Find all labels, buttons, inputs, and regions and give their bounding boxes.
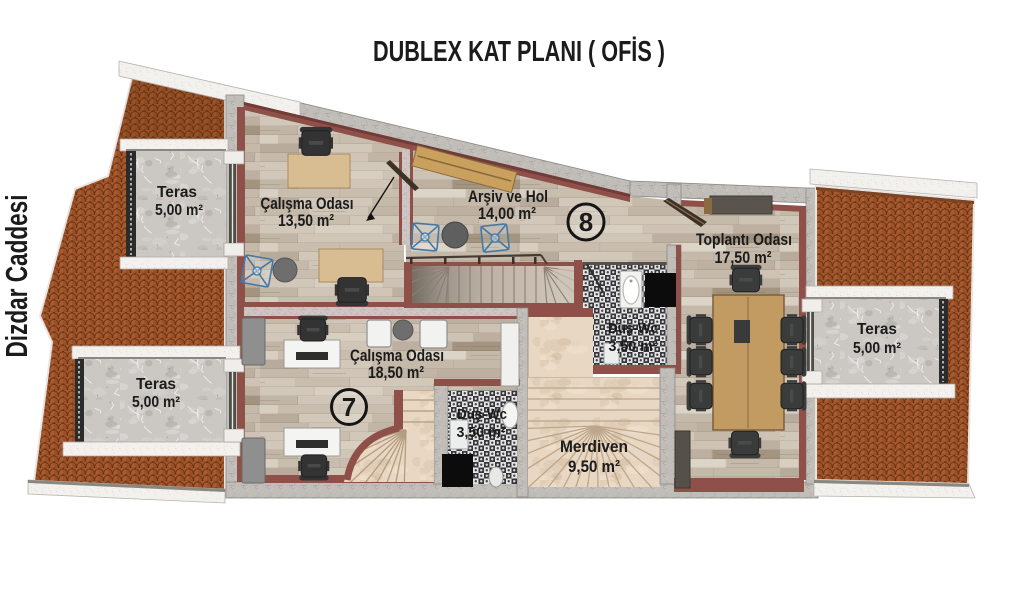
svg-text:5,00 m²: 5,00 m² <box>853 340 901 357</box>
svg-text:18,50 m²: 18,50 m² <box>368 363 424 382</box>
svg-text:5,00 m²: 5,00 m² <box>132 394 180 411</box>
svg-text:5,00 m²: 5,00 m² <box>155 202 203 219</box>
svg-text:Teras: Teras <box>136 376 176 393</box>
svg-text:Duş-Wc: Duş-Wc <box>457 406 507 423</box>
svg-text:Merdiven: Merdiven <box>560 437 628 456</box>
svg-text:7: 7 <box>342 392 356 422</box>
svg-text:14,00 m²: 14,00 m² <box>478 204 536 223</box>
svg-text:8: 8 <box>579 207 593 237</box>
svg-text:3,50 m²: 3,50 m² <box>609 338 658 355</box>
svg-text:Dizdar Caddesi: Dizdar Caddesi <box>0 195 34 358</box>
svg-text:Toplantı Odası: Toplantı Odası <box>696 230 792 249</box>
svg-text:9,50 m²: 9,50 m² <box>568 457 620 476</box>
svg-text:Teras: Teras <box>157 184 197 201</box>
svg-text:Duş-Wc: Duş-Wc <box>608 320 658 337</box>
svg-text:Teras: Teras <box>857 321 897 338</box>
svg-text:13,50 m²: 13,50 m² <box>278 211 334 230</box>
svg-text:DUBLEX KAT PLANI ( OFİS ): DUBLEX KAT PLANI ( OFİS ) <box>373 36 665 68</box>
svg-text:3,50 m²: 3,50 m² <box>457 424 506 441</box>
svg-text:17,50 m²: 17,50 m² <box>715 248 772 267</box>
